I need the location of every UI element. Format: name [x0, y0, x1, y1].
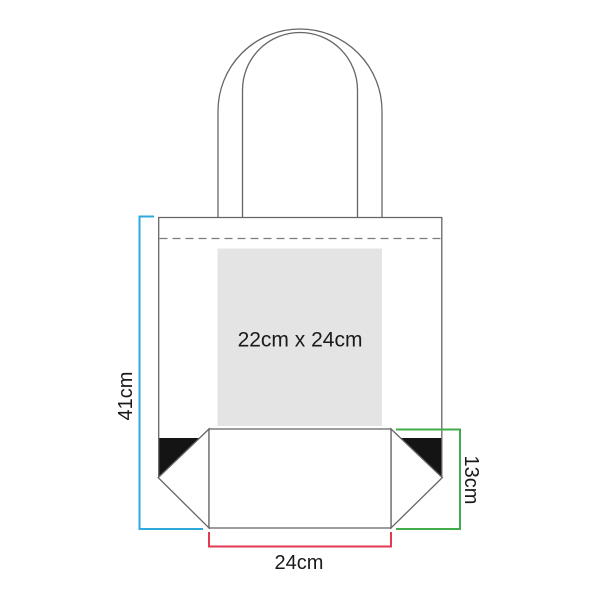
bottom-width-dimension-line [209, 532, 391, 547]
gusset-height-label: 13cm [460, 456, 482, 505]
bag-height-label: 41cm [115, 372, 137, 421]
handle-inner-line [243, 33, 358, 218]
print-area-label: 22cm x 24cm [238, 329, 363, 352]
diagram-svg: 22cm x 24cm 41cm 13cm 24cm [0, 0, 600, 600]
bottom-width-label: 24cm [275, 552, 324, 574]
gusset-panel [209, 429, 391, 528]
tote-bag-dimension-diagram: 22cm x 24cm 41cm 13cm 24cm [0, 0, 600, 600]
